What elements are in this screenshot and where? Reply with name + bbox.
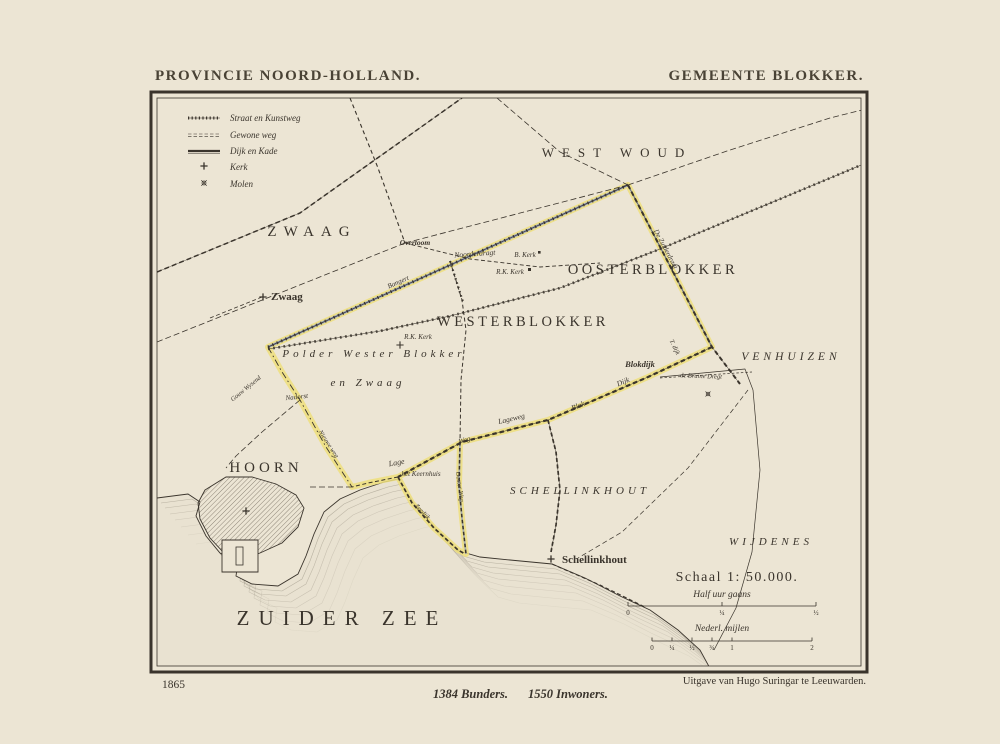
scale-miles-label: Nederl. mijlen (694, 624, 750, 634)
scale-miles-tick-0: 0 (650, 644, 654, 652)
place-label-zwaag: Zwaag (271, 291, 303, 303)
footer-publisher: Uitgave van Hugo Suringar te Leeuwarden. (683, 676, 866, 687)
legend-windmill-icon (201, 180, 206, 185)
rk-kerk-east-icon (528, 268, 531, 271)
place-label-overtoom: Overtoom (400, 238, 431, 247)
map-sheet: ZWAAG WEST WOUD OOSTERBLOKKER WESTERBLOK… (0, 0, 1000, 744)
place-label-b-kerk: B. Kerk (514, 251, 536, 259)
footer-population: 1550 Inwoners. (528, 687, 608, 701)
scale-miles-tick-5: 2 (810, 644, 814, 652)
region-label-venhuizen: VENHUIZEN (741, 351, 840, 363)
scale-walking-label: Half uur gaans (692, 589, 751, 600)
scale-miles-tick-2: ½ (689, 644, 694, 652)
region-label-zuiderzee: ZUIDER ZEE (237, 606, 448, 630)
place-label-blokdijk: Blokdijk (624, 359, 656, 369)
hoorn-harbor-block (222, 540, 258, 572)
title-municipality: GEMEENTE BLOKKER. (668, 68, 864, 84)
region-label-wijdenes: WIJDENES (729, 536, 813, 548)
region-label-hoorn: HOORN (229, 460, 302, 476)
region-label-oosterblokker: OOSTERBLOKKER (568, 262, 738, 278)
scale-miles-tick-3: ¾ (709, 644, 714, 652)
road-label-keernhuis: het Keernhuis (401, 470, 440, 478)
region-label-schellinkhout: SCHELLINKHOUT (510, 485, 650, 497)
b-kerk-icon (538, 251, 541, 254)
region-label-westwoud: WEST WOUD (542, 145, 693, 160)
scale-walking-tick-0: 0 (626, 609, 630, 617)
footer-area: 1384 Bunders. (433, 687, 508, 701)
title-province: PROVINCIE NOORD-HOLLAND. (155, 68, 421, 84)
polder-label-line1: Polder Wester Blokker (281, 348, 465, 360)
scale-walking-tick-2: ½ (813, 609, 818, 617)
scale-miles-tick-4: 1 (730, 644, 734, 652)
legend-item-label: Straat en Kunstweg (230, 113, 301, 123)
legend-item-label: Dijk en Kade (229, 146, 278, 156)
scale-title: Schaal 1: 50.000. (676, 570, 799, 585)
place-label-schellinkhout: Schellinkhout (562, 554, 627, 566)
scale-walking-tick-1: ¼ (719, 609, 724, 617)
region-label-zwaag: ZWAAG (267, 224, 356, 240)
legend-item-label: Kerk (229, 162, 249, 172)
place-label-rk-kerk-east: R.K. Kerk (495, 268, 525, 276)
legend-item-label: Molen (229, 179, 253, 189)
map-canvas: ZWAAG WEST WOUD OOSTERBLOKKER WESTERBLOK… (0, 0, 1000, 744)
polder-label-line2: en Zwaag (330, 377, 405, 389)
road-label-bruine-dregt: de Bruine Dregt (680, 372, 722, 380)
scale-miles-tick-1: ¼ (669, 644, 674, 652)
windmill-icon (706, 392, 711, 397)
footer-year: 1865 (162, 679, 185, 691)
region-label-westerblokker: WESTERBLOKKER (437, 314, 609, 330)
legend-item-label: Gewone weg (230, 130, 277, 140)
place-label-rk-kerk-west: R.K. Kerk (403, 333, 433, 341)
